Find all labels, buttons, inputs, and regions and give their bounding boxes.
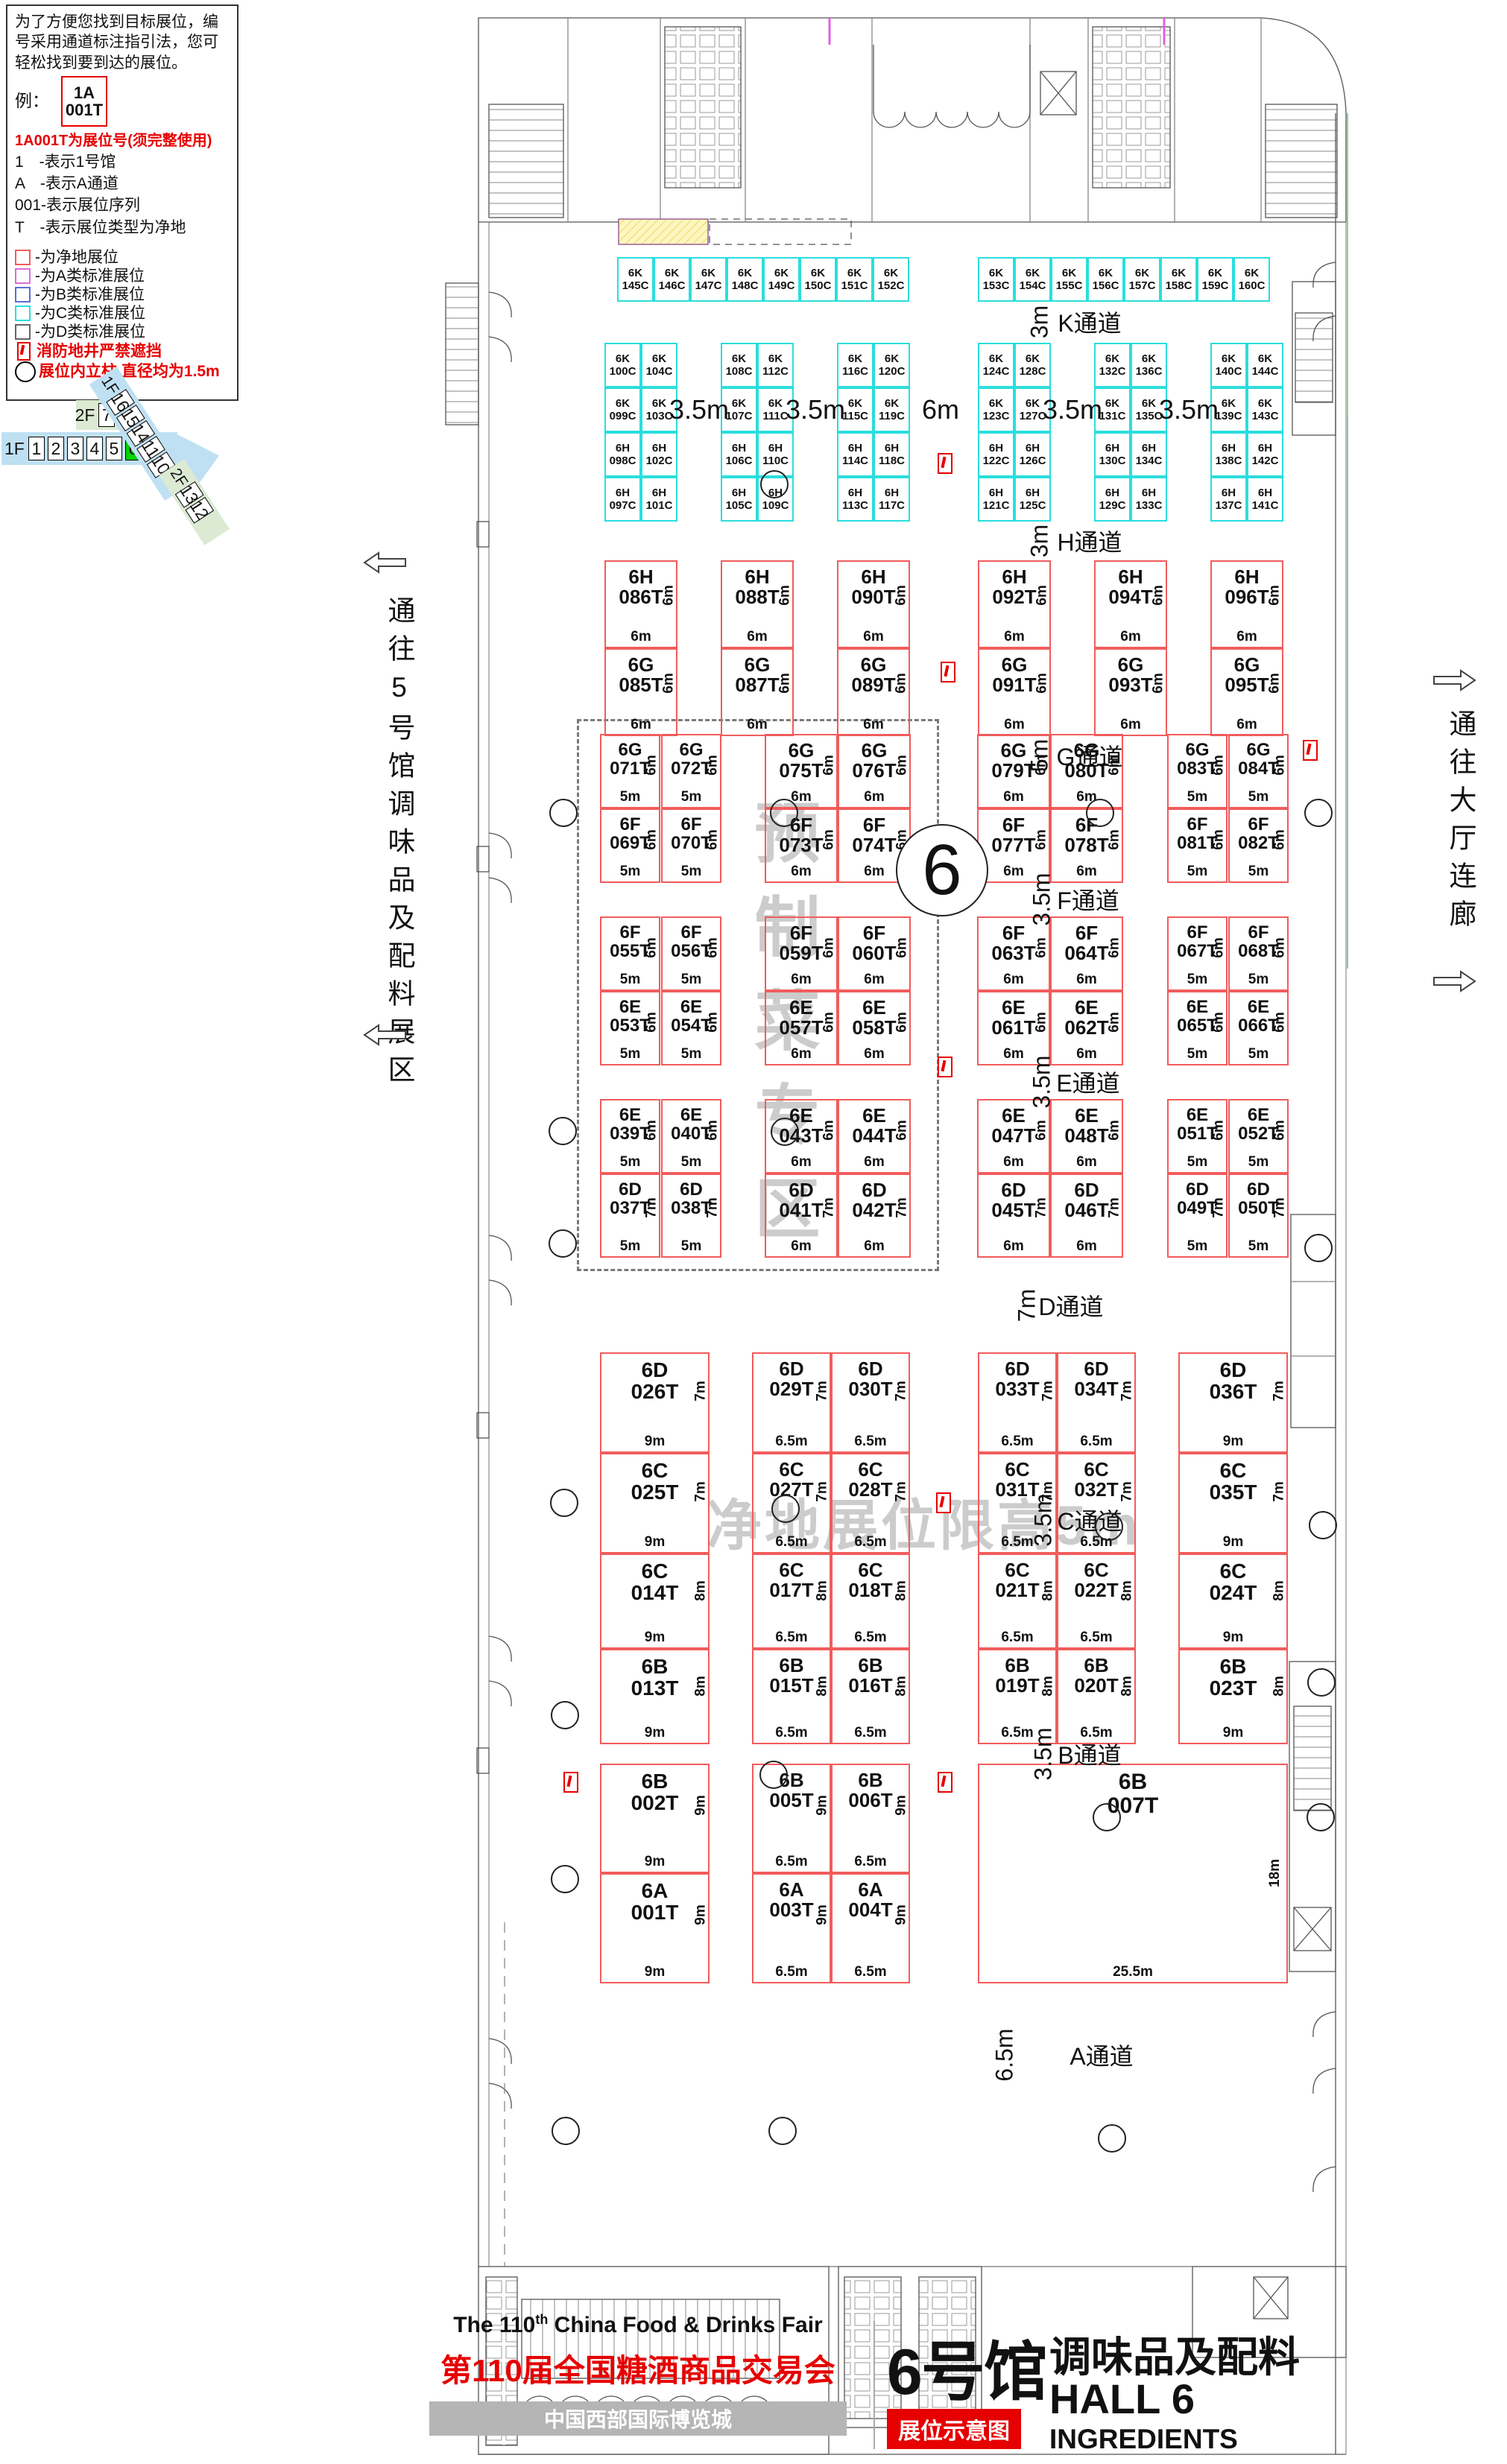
- booth-6B013T: 6B013T8m9m: [600, 1649, 710, 1744]
- booth-width-label: 6m: [766, 1154, 836, 1171]
- minimap-hall-1: 1: [28, 437, 45, 460]
- booth-6H138C: 6H138C: [1210, 432, 1247, 477]
- minimap-2f-label: 2F: [75, 405, 95, 425]
- arrow-right-icon: [1432, 969, 1477, 994]
- arrow-left-icon: [362, 550, 407, 575]
- booth-code: 6K124C: [979, 352, 1013, 379]
- booth-depth-label: 7m: [1040, 1381, 1056, 1402]
- booth-6H105C: 6H105C: [721, 477, 757, 522]
- booth-width-label: 9m: [601, 1725, 708, 1741]
- booth-6K108C: 6K108C: [721, 343, 757, 387]
- booth-depth-label: 6m: [1150, 585, 1166, 605]
- booth-code: 6C035T: [1180, 1460, 1286, 1504]
- legend-item-label: -为B类标准展位: [35, 285, 145, 305]
- booth-6E062T: 6E062T6m6m: [1050, 991, 1123, 1065]
- booth-6C028T: 6C028T7m6.5m: [831, 1453, 910, 1554]
- booth-depth-label: 8m: [1271, 1676, 1287, 1696]
- booth-depth-label: 6m: [1271, 755, 1288, 775]
- booth-width-label: 6m: [1052, 789, 1122, 805]
- booth-code: 6K104C: [642, 352, 676, 379]
- pillar-icon: [15, 361, 36, 382]
- booth-depth-label: 6m: [894, 1120, 910, 1140]
- booth-code: 6B002T: [601, 1770, 708, 1814]
- booth-depth-label: 6m: [643, 829, 660, 849]
- booth-6K160C: 6K160C: [1233, 257, 1270, 302]
- booth-width-label: 5m: [601, 1154, 659, 1171]
- booth-width-label: 25.5m: [979, 1964, 1286, 1980]
- booth-6G095T: 6G095T6m6m: [1210, 648, 1283, 736]
- booth-depth-label: 7m: [894, 1197, 910, 1217]
- fire-hydrant-icon: [938, 1057, 952, 1077]
- booth-width-label: 9m: [601, 1630, 708, 1646]
- arrow-left-icon: [362, 1022, 407, 1048]
- booth-width-label: 5m: [1169, 1046, 1226, 1062]
- booth-depth-label: 6m: [704, 755, 721, 775]
- booth-depth-label: 9m: [692, 1904, 709, 1925]
- booth-code: 6H097C: [606, 487, 639, 513]
- booth-depth-label: 8m: [1040, 1676, 1056, 1696]
- booth-width-label: 5m: [1169, 972, 1226, 988]
- booth-code: 6K147C: [692, 267, 725, 293]
- booth-6D049T: 6D049T7m5m: [1167, 1174, 1228, 1258]
- booth-width-label: 6m: [1052, 1046, 1122, 1062]
- legend-panel: 为了方便您找到目标展位，编号采用通道标注指引法，您可轻松找到要到达的展位。 例：…: [6, 4, 238, 401]
- booth-6A004T: 6A004T9m6.5m: [831, 1873, 910, 1983]
- booth-depth-label: 6m: [894, 755, 910, 775]
- booth-width-label: 6m: [1096, 717, 1166, 733]
- booth-depth-label: 6m: [660, 673, 677, 693]
- venue-minimap: 2F 78 1F 123456 9 1F 1615141110 2F 1312: [0, 395, 253, 641]
- booth-map-red-box: 展位示意图: [887, 2409, 1021, 2449]
- booth-code: 6H137C: [1212, 487, 1245, 513]
- booth-6G093T: 6G093T6m6m: [1094, 648, 1167, 736]
- booth-width-label: 6m: [839, 1238, 909, 1255]
- booth-6K153C: 6K153C: [978, 257, 1014, 302]
- booth-depth-label: 8m: [893, 1676, 909, 1696]
- booth-depth-label: 7m: [692, 1381, 709, 1402]
- fair-title-block: The 110th China Food & Drinks Fair 第110届…: [417, 2312, 859, 2436]
- booth-code: 6K152C: [874, 267, 908, 293]
- legend-item: -为B类标准展位: [15, 285, 231, 304]
- booth-6F068T: 6F068T6m5m: [1228, 916, 1289, 991]
- title-block: The 110th China Food & Drinks Fair 第110届…: [0, 2306, 1507, 2464]
- booth-depth-label: 7m: [692, 1482, 709, 1502]
- pillar-circle: [550, 1489, 578, 1517]
- booth-code: 6H098C: [606, 442, 639, 468]
- booth-6D050T: 6D050T7m5m: [1228, 1174, 1289, 1258]
- booth-code: 6H138C: [1212, 442, 1245, 468]
- booth-code: 6K150C: [801, 267, 835, 293]
- legend-item: -为净地展位: [15, 248, 231, 267]
- booth-6E051T: 6E051T6m5m: [1167, 1099, 1228, 1174]
- booth-6H102C: 6H102C: [641, 432, 677, 477]
- booth-6K100C: 6K100C: [604, 343, 641, 387]
- booth-width-label: 5m: [663, 1238, 720, 1255]
- pillar-circle: [1093, 1803, 1121, 1831]
- booth-width-label: 6.5m: [833, 1434, 909, 1450]
- booth-6E066T: 6E066T6m5m: [1228, 991, 1289, 1065]
- legend-fire-note: 消防地井严禁遮挡: [37, 341, 162, 361]
- booth-6E047T: 6E047T6m6m: [977, 1099, 1050, 1174]
- booth-code: 6K151C: [838, 267, 871, 293]
- pillar-circle: [771, 1495, 800, 1523]
- booth-width-label: 5m: [1230, 789, 1287, 805]
- booth-6K147C: 6K147C: [690, 257, 727, 302]
- pillar-circle: [760, 470, 789, 498]
- booth-width-label: 6.5m: [753, 1434, 830, 1450]
- pillar-circle: [1098, 2124, 1126, 2153]
- booth-depth-label: 8m: [692, 1580, 709, 1600]
- booth-depth-label: 9m: [893, 1904, 909, 1925]
- booth-depth-label: 6m: [1034, 585, 1050, 605]
- booth-6F069T: 6F069T6m5m: [600, 808, 660, 883]
- booth-depth-label: 6m: [1210, 937, 1227, 957]
- booth-6C024T: 6C024T8m9m: [1178, 1554, 1288, 1649]
- aisle-width-H通道: 3m: [1026, 525, 1054, 557]
- booth-6H141C: 6H141C: [1247, 477, 1283, 522]
- booth-depth-label: 7m: [1271, 1197, 1288, 1217]
- booth-width-label: 5m: [601, 864, 659, 880]
- hall-name-cn: 6号馆: [887, 2319, 1046, 2413]
- booth-6K146C: 6K146C: [654, 257, 690, 302]
- booth-depth-label: 7m: [1210, 1197, 1227, 1217]
- legend-booth-number-note: 1A001T为展位号(须完整使用): [15, 131, 231, 151]
- to-hall5-label: 通往5号馆调味品及配料展区: [379, 596, 419, 1093]
- booth-depth-label: 6m: [1210, 829, 1227, 849]
- booth-6H101C: 6H101C: [641, 477, 677, 522]
- booth-6G083T: 6G083T6m5m: [1167, 734, 1228, 808]
- booth-width-label: 5m: [1169, 864, 1226, 880]
- booth-width-label: 6m: [839, 789, 909, 805]
- booth-6K099C: 6K099C: [604, 387, 641, 432]
- booth-width-label: 5m: [1169, 1154, 1226, 1171]
- booth-depth-label: 6m: [1210, 1012, 1227, 1032]
- booth-depth-label: 6m: [1033, 1012, 1049, 1032]
- booth-width-label: 6m: [722, 629, 792, 645]
- pillar-circle: [759, 1761, 788, 1789]
- booth-width-label: 5m: [601, 1238, 659, 1255]
- booth-6K152C: 6K152C: [873, 257, 909, 302]
- pillar-circle: [549, 1229, 577, 1258]
- booth-depth-label: 7m: [814, 1482, 830, 1502]
- booth-6E044T: 6E044T6m6m: [838, 1099, 911, 1174]
- booth-6A001T: 6A001T9m9m: [600, 1873, 710, 1983]
- booth-width-label: 5m: [1169, 1238, 1226, 1255]
- booth-6C014T: 6C014T8m9m: [600, 1554, 710, 1649]
- booth-depth-label: 8m: [893, 1580, 909, 1600]
- legend-code-note: T -表示展位类型为净地: [15, 218, 231, 238]
- booth-width-label: 6m: [766, 972, 836, 988]
- booth-6H121C: 6H121C: [978, 477, 1014, 522]
- booth-depth-label: 6m: [1033, 937, 1049, 957]
- booth-depth-label: 9m: [814, 1795, 830, 1815]
- aisle-label-K通道: K通道: [1058, 305, 1121, 339]
- booth-depth-label: 8m: [814, 1580, 830, 1600]
- booth-code: 6K149C: [765, 267, 798, 293]
- booth-depth-label: 8m: [1040, 1580, 1056, 1600]
- booth-code: 6K144C: [1248, 352, 1282, 379]
- booth-depth-label: 8m: [1119, 1676, 1135, 1696]
- booth-code: 6H106C: [722, 442, 756, 468]
- booth-depth-label: 6m: [1271, 1120, 1288, 1140]
- booth-code: 6C024T: [1180, 1560, 1286, 1604]
- booth-width-label: 6.5m: [1058, 1630, 1134, 1646]
- booth-6E065T: 6E065T6m5m: [1167, 991, 1228, 1065]
- booth-6G084T: 6G084T6m5m: [1228, 734, 1289, 808]
- booth-width-label: 6m: [766, 1238, 836, 1255]
- booth-width-label: 6m: [606, 717, 676, 733]
- pillar-circle: [551, 1865, 579, 1893]
- booth-code: 6K123C: [979, 397, 1013, 423]
- booth-width-label: 6m: [979, 629, 1049, 645]
- venue-name-bar: 中国西部国际博览城: [429, 2401, 847, 2436]
- booth-depth-label: 6m: [643, 937, 660, 957]
- booth-6F064T: 6F064T6m6m: [1050, 916, 1123, 991]
- booth-depth-label: 9m: [814, 1904, 830, 1925]
- booth-6K157C: 6K157C: [1124, 257, 1160, 302]
- booth-width-label: 5m: [601, 972, 659, 988]
- booth-6G075T: 6G075T6m6m: [765, 734, 838, 808]
- fire-hydrant-icon: [941, 662, 955, 682]
- legend-item-label: -为D类标准展位: [35, 322, 145, 342]
- booth-depth-label: 6m: [821, 937, 837, 957]
- booth-6K145C: 6K145C: [617, 257, 654, 302]
- booth-6A003T: 6A003T9m6.5m: [752, 1873, 831, 1983]
- booth-code: 6H129C: [1096, 487, 1129, 513]
- booth-width-label: 5m: [663, 864, 720, 880]
- booth-6E057T: 6E057T6m6m: [765, 991, 838, 1065]
- booth-6E061T: 6E061T6m6m: [977, 991, 1050, 1065]
- booth-code: 6H130C: [1096, 442, 1129, 468]
- legend-code-explanations: 1 -表示1号馆A -表示A通道001-表示展位序列T -表示展位类型为净地: [15, 152, 231, 238]
- booth-6H092T: 6H092T6m6m: [978, 560, 1051, 648]
- booth-depth-label: 6m: [1106, 1120, 1122, 1140]
- booth-code: 6K143C: [1248, 397, 1282, 423]
- aisle-width-E通道: 3.5m: [1029, 1055, 1056, 1108]
- booth-depth-label: 6m: [1271, 829, 1288, 849]
- booth-width-label: 5m: [1230, 972, 1287, 988]
- booth-6F056T: 6F056T6m5m: [661, 916, 721, 991]
- legend-item-label: -为净地展位: [35, 247, 119, 267]
- booth-width-label: 6.5m: [833, 1630, 909, 1646]
- legend-item-label: -为A类标准展位: [35, 266, 145, 286]
- booth-6B020T: 6B020T8m6.5m: [1057, 1649, 1136, 1744]
- booth-code: 6K100C: [606, 352, 639, 379]
- booth-code: 6K120C: [875, 352, 909, 379]
- booth-6H094T: 6H094T6m6m: [1094, 560, 1167, 648]
- booth-6C025T: 6C025T7m9m: [600, 1453, 710, 1554]
- legend-color-swatch: [15, 250, 31, 265]
- legend-item-label: -为C类标准展位: [35, 303, 145, 323]
- aisle-label-A通道: A通道: [1070, 2038, 1133, 2072]
- booth-depth-label: 6m: [777, 673, 793, 693]
- booth-6D046T: 6D046T7m6m: [1050, 1174, 1123, 1258]
- fire-hydrant-icon: [936, 1492, 951, 1513]
- booth-6D036T: 6D036T7m9m: [1178, 1352, 1288, 1453]
- legend-item: -为C类标准展位: [15, 304, 231, 323]
- aisle-label-D通道: D通道: [1038, 1288, 1103, 1323]
- booth-6D042T: 6D042T7m6m: [838, 1174, 911, 1258]
- booth-code: 6C014T: [601, 1560, 708, 1604]
- pillar-circle: [1095, 1513, 1123, 1541]
- booth-6H118C: 6H118C: [873, 432, 910, 477]
- booth-6H117C: 6H117C: [873, 477, 910, 522]
- booth-6B023T: 6B023T8m9m: [1178, 1649, 1288, 1744]
- pillar-circle: [771, 1118, 799, 1146]
- booth-6H130C: 6H130C: [1094, 432, 1131, 477]
- aisle-width-C通道: 3.5m: [1030, 1493, 1058, 1546]
- booth-code: 6C025T: [601, 1460, 708, 1504]
- booth-6G071T: 6G071T6m5m: [600, 734, 660, 808]
- booth-width-label: 6m: [1052, 864, 1122, 880]
- pillar-circle: [1304, 1234, 1333, 1262]
- booth-width-label: 6m: [1052, 972, 1122, 988]
- booth-code: 6H121C: [979, 487, 1013, 513]
- booth-6G072T: 6G072T6m5m: [661, 734, 721, 808]
- minimap-hall-3: 3: [67, 437, 83, 460]
- booth-6H133C: 6H133C: [1131, 477, 1167, 522]
- legend-color-swatch: [15, 305, 31, 321]
- booth-6C022T: 6C022T8m6.5m: [1057, 1554, 1136, 1649]
- block-gap-label: 3.5m: [669, 394, 729, 425]
- booth-depth-label: 8m: [1119, 1580, 1135, 1600]
- booth-6K155C: 6K155C: [1051, 257, 1087, 302]
- booth-depth-label: 6m: [704, 1012, 721, 1032]
- aisle-label-E通道: E通道: [1056, 1065, 1119, 1099]
- legend-code-note: 001-表示展位序列: [15, 195, 231, 215]
- aisle-width-G通道: 5m: [1026, 739, 1054, 772]
- legend-item: -为A类标准展位: [15, 267, 231, 285]
- booth-code: 6K140C: [1212, 352, 1245, 379]
- booth-6C018T: 6C018T8m6.5m: [831, 1554, 910, 1649]
- booth-6H137C: 6H137C: [1210, 477, 1247, 522]
- booth-width-label: 5m: [1230, 1238, 1287, 1255]
- booth-6F060T: 6F060T6m6m: [838, 916, 911, 991]
- booth-6H114C: 6H114C: [837, 432, 873, 477]
- booth-6F063T: 6F063T6m6m: [977, 916, 1050, 991]
- booth-6H142C: 6H142C: [1247, 432, 1283, 477]
- booth-depth-label: 6m: [643, 1012, 660, 1032]
- booth-depth-label: 7m: [814, 1381, 830, 1402]
- booth-6B002T: 6B002T9m9m: [600, 1764, 710, 1873]
- fire-hydrant-icon: [17, 342, 31, 361]
- minimap-hall-5: 5: [106, 437, 122, 460]
- booth-code: 6K148C: [728, 267, 762, 293]
- booth-code: 6B007T: [979, 1770, 1286, 1817]
- booth-code: 6H142C: [1248, 442, 1282, 468]
- booth-width-label: 6m: [1052, 1238, 1122, 1255]
- booth-6H134C: 6H134C: [1131, 432, 1167, 477]
- booth-width-label: 9m: [1180, 1434, 1286, 1450]
- booth-6K104C: 6K104C: [641, 343, 677, 387]
- booth-6H129C: 6H129C: [1094, 477, 1131, 522]
- legend-color-swatch: [15, 287, 31, 303]
- booth-depth-label: 7m: [1271, 1482, 1287, 1502]
- booth-width-label: 5m: [1169, 789, 1226, 805]
- booth-6F067T: 6F067T6m5m: [1167, 916, 1228, 991]
- aisle-width-F通道: 3.5m: [1029, 872, 1056, 925]
- booth-depth-label: 8m: [692, 1676, 709, 1696]
- booth-width-label: 5m: [1230, 1154, 1287, 1171]
- booth-depth-label: 8m: [814, 1676, 830, 1696]
- booth-depth-label: 7m: [893, 1482, 909, 1502]
- fire-hydrant-icon: [1303, 740, 1318, 761]
- pillar-circle: [1309, 1511, 1337, 1539]
- booth-6D038T: 6D038T7m5m: [661, 1174, 721, 1258]
- booth-6E052T: 6E052T6m5m: [1228, 1099, 1289, 1174]
- booth-depth-label: 6m: [777, 585, 793, 605]
- minimap-hall-4: 4: [86, 437, 103, 460]
- booth-6H122C: 6H122C: [978, 432, 1014, 477]
- floorplan-canvas: 预制菜专区 净地展位限高5m 6 6K145C6K146C6K147C6K148…: [0, 0, 1507, 2464]
- booth-width-label: 9m: [1180, 1534, 1286, 1551]
- booth-6H098C: 6H098C: [604, 432, 641, 477]
- booth-code: 6K145C: [619, 267, 652, 293]
- booth-code: 6H105C: [722, 487, 756, 513]
- booth-width-label: 6m: [979, 1154, 1049, 1171]
- booth-depth-label: 9m: [893, 1795, 909, 1815]
- booth-6F055T: 6F055T6m5m: [600, 916, 660, 991]
- booth-6K143C: 6K143C: [1247, 387, 1283, 432]
- booth-6K119C: 6K119C: [873, 387, 910, 432]
- booth-width-label: 9m: [601, 1534, 708, 1551]
- booth-6H125C: 6H125C: [1014, 477, 1051, 522]
- booth-depth-label: 18m: [1267, 1859, 1283, 1887]
- legend-color-swatch: [15, 268, 31, 284]
- booth-code: 6K146C: [655, 267, 689, 293]
- aisle-label-G通道: G通道: [1057, 738, 1123, 773]
- booth-code: 6H102C: [642, 442, 676, 468]
- booth-depth-label: 6m: [1150, 673, 1166, 693]
- legend-pillar-note: 展位内立柱 直径均为1.5m: [39, 361, 220, 381]
- fire-hydrant-icon: [938, 453, 952, 474]
- booth-6G076T: 6G076T6m6m: [838, 734, 911, 808]
- booth-width-label: 6.5m: [753, 1630, 830, 1646]
- booth-width-label: 5m: [663, 972, 720, 988]
- booth-6D041T: 6D041T7m6m: [765, 1174, 838, 1258]
- booth-6D034T: 6D034T7m6.5m: [1057, 1352, 1136, 1453]
- category-en: INGREDIENTS: [1049, 2424, 1238, 2455]
- booth-6H097C: 6H097C: [604, 477, 641, 522]
- booth-width-label: 6m: [1212, 717, 1282, 733]
- booth-code: 6K136C: [1132, 352, 1166, 379]
- booth-6E054T: 6E054T6m5m: [661, 991, 721, 1065]
- booth-width-label: 6m: [722, 717, 792, 733]
- legend-intro-text: 为了方便您找到目标展位，编号采用通道标注指引法，您可轻松找到要到达的展位。: [15, 12, 233, 73]
- booth-width-label: 6.5m: [979, 1630, 1055, 1646]
- booth-width-label: 9m: [1180, 1725, 1286, 1741]
- legend-booth-type-items: -为净地展位-为A类标准展位-为B类标准展位-为C类标准展位-为D类标准展位: [15, 248, 231, 341]
- booth-width-label: 6m: [979, 789, 1049, 805]
- aisle-width-D通道: 7m: [1014, 1289, 1041, 1322]
- booth-6H106C: 6H106C: [721, 432, 757, 477]
- booth-depth-label: 6m: [1033, 829, 1049, 849]
- booth-6K128C: 6K128C: [1014, 343, 1051, 387]
- booth-code: 6B023T: [1180, 1656, 1286, 1700]
- booth-depth-label: 6m: [821, 829, 837, 849]
- booth-width-label: 6m: [979, 717, 1049, 733]
- booth-code: 6H117C: [875, 487, 909, 513]
- booth-code: 6K108C: [722, 352, 756, 379]
- booth-depth-label: 6m: [1271, 937, 1288, 957]
- booth-width-label: 6m: [839, 1154, 909, 1171]
- booth-depth-label: 6m: [821, 1120, 837, 1140]
- booth-width-label: 5m: [663, 1154, 720, 1171]
- booth-6K149C: 6K149C: [763, 257, 800, 302]
- booth-code: 6K119C: [875, 397, 909, 423]
- booth-depth-label: 6m: [821, 755, 837, 775]
- booth-6B006T: 6B006T9m6.5m: [831, 1764, 910, 1873]
